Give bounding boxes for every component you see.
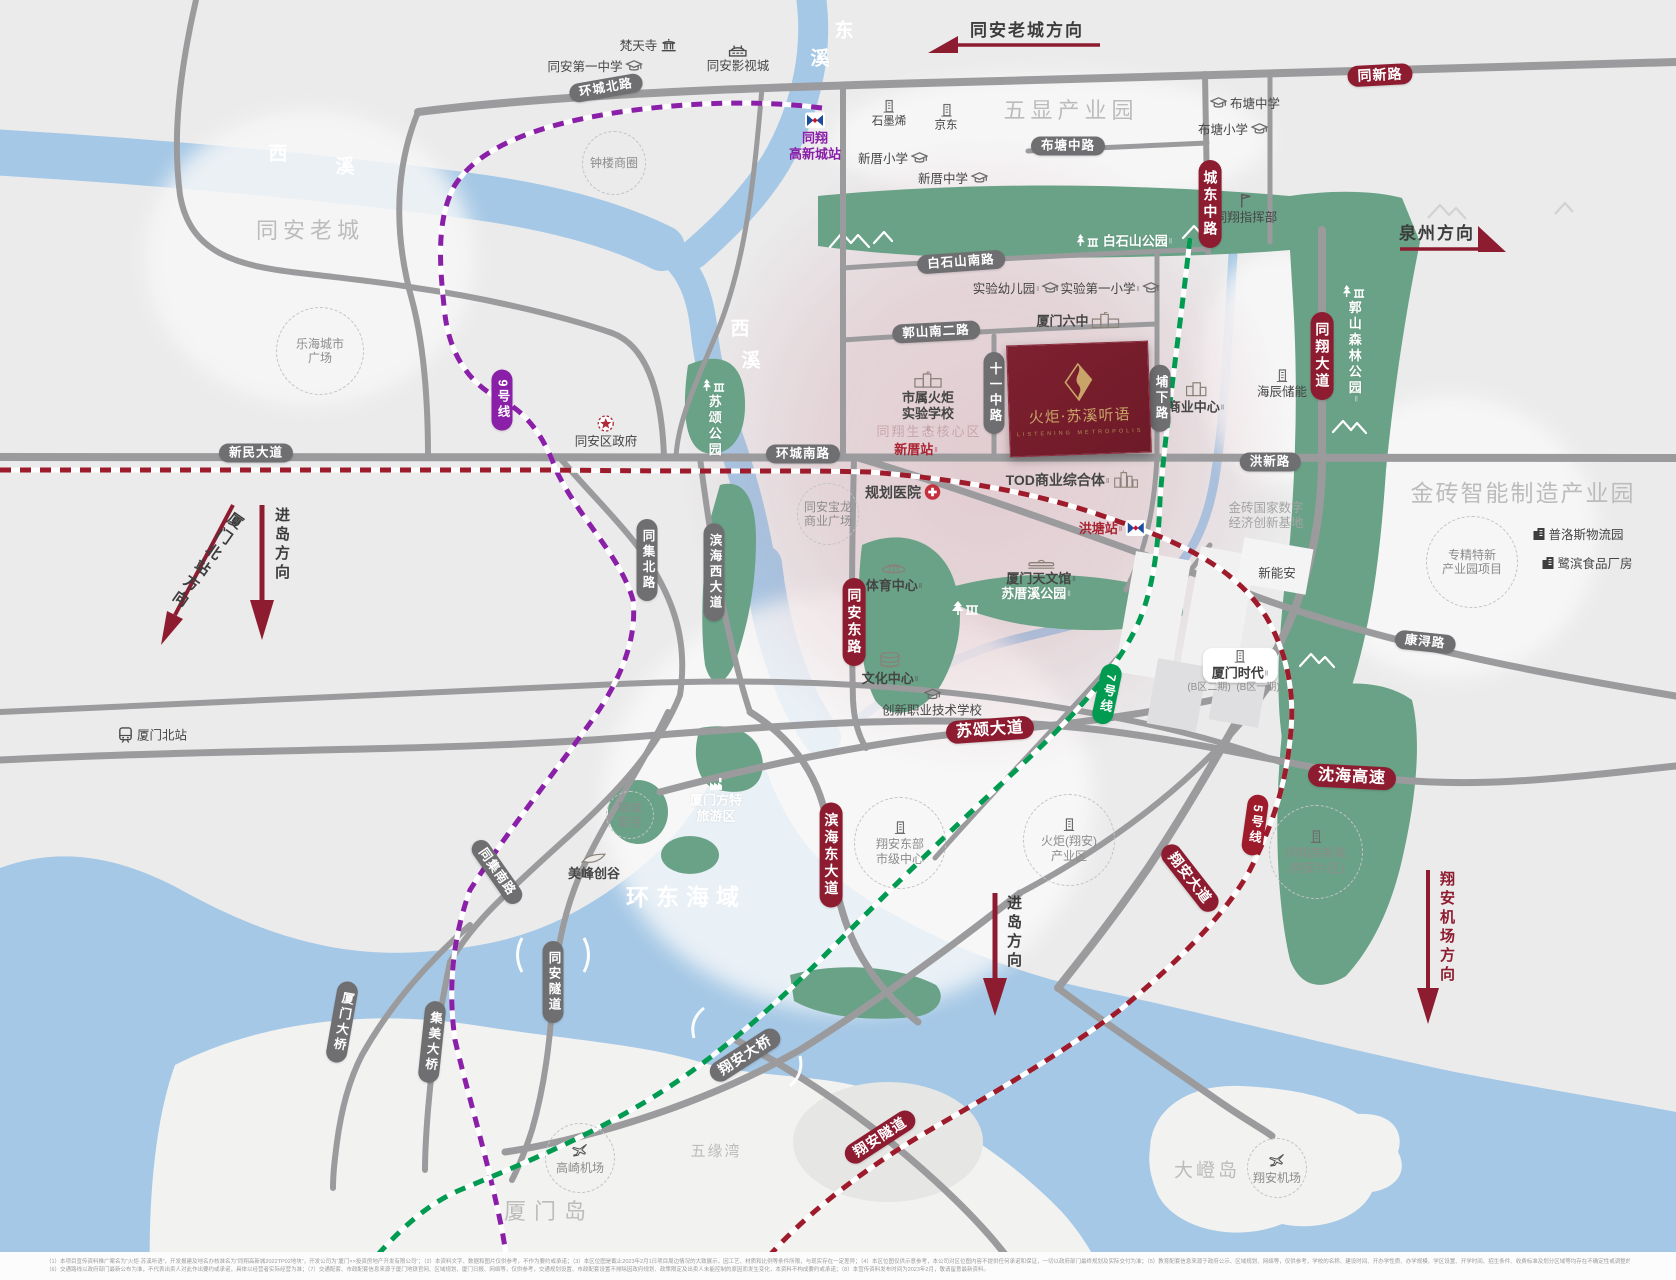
poi-butang-middle: 布塘中学 <box>1210 96 1280 112</box>
station-tongxiang-hitech: 同翔高新城站 <box>789 112 841 161</box>
circle-xiangan-east-center: 翔安东部市级中心 <box>854 797 946 889</box>
station-hongtang: 洪塘站 <box>1079 520 1146 538</box>
pill-tongxin-rd: 同新路 <box>1347 63 1413 87</box>
poi-shiyan-kindergarten: 实验幼儿园 <box>973 281 1059 297</box>
pill-tongxiang-ave: 同翔大道 <box>1311 312 1334 400</box>
poi-susong-park: 苏颂公园 <box>702 378 726 459</box>
bdark-icon <box>1532 527 1545 541</box>
school-icon <box>923 688 940 702</box>
poi-tongxiang-hq: 同翔指挥部 <box>1215 193 1278 226</box>
pill-tongan-tunnel: 同安隧道 <box>543 941 564 1023</box>
gray-mountain-icon <box>1428 203 1573 219</box>
building-icon <box>1276 368 1288 383</box>
poi-xiamen-north-station: 厦门北站 <box>117 727 187 746</box>
poi-guoshan-forest-park: 郭山森林公园 <box>1342 284 1366 407</box>
poi-xincuo-middle: 新厝中学 <box>918 171 988 187</box>
poi-meifeng-valley: 美峰创谷 <box>568 852 620 882</box>
poi-culture-center: 文化中心 <box>862 651 919 687</box>
circle-gaoqi-airport: 高崎机场 <box>545 1123 615 1193</box>
circle-baolong-plaza: 同安宝龙商业广场 <box>797 483 859 545</box>
school-icon <box>1042 281 1059 295</box>
temple-icon <box>660 38 676 52</box>
dir-island-center: 进岛方向 <box>1004 895 1022 971</box>
pill-hongxin-rd: 洪新路 <box>1240 453 1301 472</box>
label-b-zone-2: (B区二期) <box>1187 682 1230 694</box>
metro-icon <box>805 112 825 128</box>
poi-fantawild: 厦门方特旅游区 <box>690 776 742 823</box>
poi-sucuoxi-park: 苏厝溪公园 <box>1001 586 1071 602</box>
pill-binhaidong-ave: 滨海东大道 <box>820 803 843 908</box>
poi-butang-primary: 布塘小学 <box>1198 122 1268 138</box>
river-xixi-char2: 溪 <box>335 157 354 180</box>
poi-lubin-food: 鹭滨食品厂房 <box>1541 556 1632 572</box>
bdark-icon <box>1541 556 1554 570</box>
river-xixi-south-char2: 溪 <box>741 351 760 374</box>
poi-fantian-temple: 梵天寺 <box>620 38 677 54</box>
poi-business-center: 商业中心 <box>1168 381 1225 416</box>
schoolbldg-icon <box>914 371 942 388</box>
label-brics-base: 金砖国家数字经济创新基地 <box>1228 501 1303 531</box>
school-icon <box>626 59 643 73</box>
pill-binhaixi-ave: 滨海西大道 <box>704 523 725 621</box>
poi-film-city: 同安影视城 <box>707 44 770 74</box>
pill-tongandong-rd: 同安东路 <box>843 578 866 666</box>
school-icon <box>1210 96 1227 110</box>
pill-xinmin-ave: 新民大道 <box>219 444 293 463</box>
poi-tongan-no1-school: 同安第一中学 <box>547 59 642 75</box>
disclaimer-line-2: （6）交通路线以政府部门最新公布为准，不代表出卖人对此作出要约或承诺，具体以经营… <box>46 1266 1630 1274</box>
building-icon <box>883 99 895 114</box>
circle-torch-xiangan: 火炬(翔安)产业区 <box>1023 794 1115 886</box>
flag-icon <box>1239 193 1253 209</box>
circle-yincheng: 银城智谷 <box>606 791 654 839</box>
building-icon <box>940 103 952 118</box>
poi-sports-center: 体育中心 <box>866 560 923 594</box>
dir-quanzhou: 泉州方向 <box>1399 224 1475 244</box>
train-icon <box>117 727 134 744</box>
building2-icon <box>1185 381 1207 398</box>
plane-icon <box>1268 1151 1286 1169</box>
stadium-icon <box>881 560 907 576</box>
studio-icon <box>728 44 748 57</box>
building-icon <box>1234 649 1246 664</box>
trowel-icon <box>581 852 607 864</box>
plane-icon <box>571 1141 589 1159</box>
river-dongxi-char1: 东 <box>834 21 853 44</box>
factoryw-icon <box>708 776 724 790</box>
disclaimer-strip: （1）本项目宣传资料推广案名为“火炬·苏溪听语”，开发报建及地名办核准名为“同翔… <box>0 1252 1676 1280</box>
dir-tongan-oldtown: 同安老城方向 <box>970 21 1084 41</box>
pill-shiyizhong-rd: 十一中路 <box>984 352 1005 434</box>
location-map: 火炬·苏溪听语 LISTENING METROPOLIS （1）本项目宣传资料推… <box>0 0 1676 1280</box>
label-b-zone-1: (B区一期) <box>1236 682 1279 694</box>
river-dongxi-char2: 溪 <box>810 49 829 72</box>
poi-xincuo-primary: 新厝小学 <box>858 151 928 167</box>
circle-lehai-plaza: 乐海城市广场 <box>276 307 364 395</box>
river-xixi-char1: 西 <box>268 144 287 167</box>
poi-district-gov: 同安区政府 <box>575 415 638 450</box>
pill-shenhai-expwy: 沈海高速 <box>1307 763 1396 791</box>
project-title: 火炬·苏溪听语 <box>1028 403 1130 428</box>
project-subtitle: LISTENING METROPOLIS <box>1017 427 1144 437</box>
pill-puxia-rd: 埔下路 <box>1150 365 1171 432</box>
cylinder-icon <box>879 651 901 669</box>
tod-icon <box>1112 469 1138 489</box>
pill-huanchengnan-rd: 环城南路 <box>766 445 840 464</box>
station-xincuo: 新厝站 <box>894 442 938 458</box>
poi-tod-complex: TOD商业综合体 <box>1006 469 1139 491</box>
area-tongan-oldtown: 同安老城 <box>256 218 364 244</box>
poi-graphene: 石墨烯 <box>872 99 907 130</box>
poi-planetarium: 厦门天文馆 <box>1006 557 1076 587</box>
poi-haichen-storage: 海辰储能 <box>1257 368 1307 400</box>
metro-icon <box>1125 520 1145 536</box>
disclaimer-line-1: （1）本项目宣传资料推广案名为“火炬·苏溪听语”，开发报建及地名办核准名为“同翔… <box>46 1258 1630 1266</box>
poi-xiamen-no6: 厦门六中 <box>1036 312 1119 331</box>
schoolbldg-icon <box>1092 312 1120 329</box>
school-icon <box>1142 281 1159 295</box>
pill-metro-line9: 9号线 <box>492 370 513 431</box>
dir-xiangan-airport: 翔安机场方向 <box>1437 871 1455 985</box>
poi-prologis: 普洛斯物流园 <box>1532 527 1623 543</box>
area-xiamen-island: 厦门岛 <box>504 1199 594 1225</box>
school-icon <box>1251 122 1268 136</box>
school-icon <box>911 151 928 165</box>
cross-icon <box>924 484 941 501</box>
school-icon <box>971 171 988 185</box>
poi-xinnengan: 新能安 <box>1258 567 1296 582</box>
area-wuxian-park: 五显产业园 <box>1003 98 1138 124</box>
dir-island-west: 进岛方向 <box>272 507 290 583</box>
pill-butangzhong-rd: 布塘中路 <box>1031 137 1105 156</box>
observatory-icon <box>1026 557 1056 569</box>
project-billboard: 火炬·苏溪听语 LISTENING METROPOLIS <box>1006 341 1152 458</box>
poi-vocational-school: 创新职业技术学校 <box>882 688 982 719</box>
area-huandong-bay: 环东海域 <box>626 884 746 912</box>
circle-specialized-park: 专精特新产业园项目 <box>1426 516 1518 608</box>
building-icon <box>894 820 906 835</box>
circle-zhonglou: 钟楼商圈 <box>582 131 646 195</box>
area-wuyuan-bay: 五缘湾 <box>690 1143 741 1161</box>
area-dadeng-island: 大嶝岛 <box>1174 1161 1240 1184</box>
building-icon <box>1310 829 1322 844</box>
poi-baishishan-park: 白石山公园 <box>1076 233 1173 250</box>
park-icon <box>702 378 726 393</box>
poi-xiamen-times: 厦门时代 <box>1203 648 1278 683</box>
building-icon <box>1063 817 1075 832</box>
poi-jd: 京东 <box>935 103 958 134</box>
area-jinzhuan-park: 金砖智能制造产业园 <box>1411 480 1636 508</box>
pill-tongjibei-rd: 同集北路 <box>637 519 658 601</box>
park-icon <box>1342 284 1366 299</box>
star-icon <box>597 415 615 433</box>
label-eco-core: 同翔生态核心区 <box>876 424 981 440</box>
poi-planned-hospital: 规划医院 <box>865 484 941 503</box>
circle-tongxiang-xiangan: 同翔高新城(翔安片区) <box>1269 805 1363 899</box>
poi-shiyan-first-primary: 实验第一小学 <box>1061 281 1160 297</box>
pill-chengdongzhong-rd: 城东中路 <box>1199 160 1222 248</box>
project-logo-icon <box>1063 362 1094 401</box>
river-xixi-south-char1: 西 <box>730 319 749 342</box>
circle-xiangan-airport: 翔安机场 <box>1247 1138 1307 1198</box>
park-icon <box>1076 233 1100 248</box>
